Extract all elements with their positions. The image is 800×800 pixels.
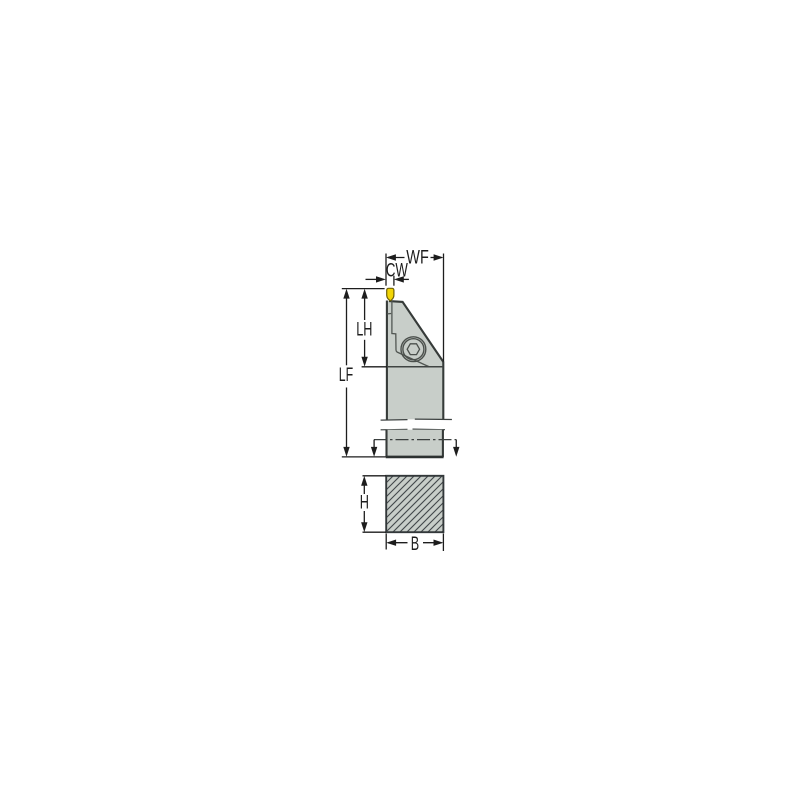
svg-text:LH: LH xyxy=(356,319,372,340)
svg-text:LF: LF xyxy=(339,365,353,386)
svg-text:H: H xyxy=(360,493,369,514)
svg-text:B: B xyxy=(411,534,419,555)
svg-text:WF: WF xyxy=(406,247,429,268)
